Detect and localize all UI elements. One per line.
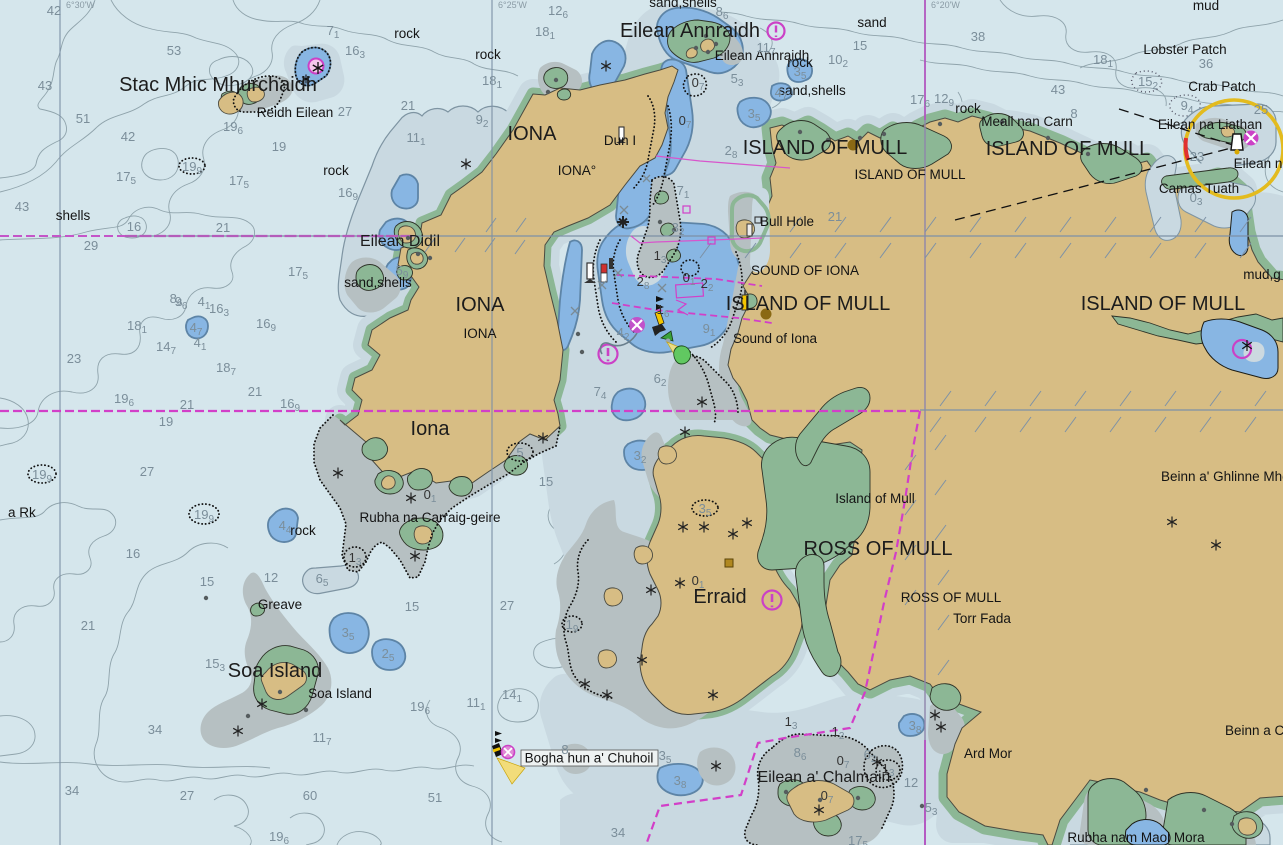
svg-text:Meall nan Carn: Meall nan Carn — [981, 114, 1073, 129]
svg-text:27: 27 — [338, 104, 352, 119]
svg-text:Dun I: Dun I — [604, 133, 636, 148]
svg-text:12: 12 — [264, 570, 278, 585]
svg-text:Lobster Patch: Lobster Patch — [1143, 42, 1226, 57]
svg-text:rock: rock — [290, 523, 316, 538]
svg-text:21: 21 — [81, 618, 95, 633]
svg-text:rock: rock — [475, 47, 501, 62]
svg-text:Beinn a C: Beinn a C — [1225, 723, 1283, 738]
svg-text:Bull Hole: Bull Hole — [760, 214, 814, 229]
svg-text:43: 43 — [1051, 82, 1065, 97]
svg-text:sand,shells: sand,shells — [778, 83, 846, 98]
svg-text:42: 42 — [47, 3, 61, 18]
svg-text:ISLAND OF MULL: ISLAND OF MULL — [743, 137, 907, 159]
svg-text:Soa Island: Soa Island — [228, 660, 323, 682]
svg-text:sand,shells: sand,shells — [649, 0, 717, 10]
svg-text:Stac Mhic Mhurchaidh: Stac Mhic Mhurchaidh — [119, 74, 317, 96]
svg-text:34: 34 — [148, 722, 162, 737]
svg-text:43: 43 — [15, 199, 29, 214]
svg-text:Iona: Iona — [411, 418, 451, 440]
svg-text:27: 27 — [180, 788, 194, 803]
svg-text:Reidh Eilean: Reidh Eilean — [257, 105, 334, 120]
svg-text:38: 38 — [971, 29, 985, 44]
svg-text:Eilean Annraidh: Eilean Annraidh — [620, 20, 760, 42]
svg-text:27: 27 — [140, 464, 154, 479]
svg-text:Island of Mull: Island of Mull — [835, 491, 915, 506]
svg-text:IONA: IONA — [456, 294, 506, 316]
svg-text:ISLAND OF MULL: ISLAND OF MULL — [854, 167, 966, 182]
svg-text:6°25'W: 6°25'W — [498, 0, 527, 10]
svg-text:ISLAND OF MULL: ISLAND OF MULL — [1081, 293, 1245, 315]
svg-text:51: 51 — [76, 111, 90, 126]
svg-text:25: 25 — [1254, 102, 1268, 117]
svg-text:Bogha hun a' Chuhoil: Bogha hun a' Chuhoil — [525, 751, 654, 766]
svg-text:42: 42 — [121, 129, 135, 144]
svg-text:sand: sand — [857, 15, 886, 30]
svg-text:Camas Tuath: Camas Tuath — [1159, 181, 1239, 196]
svg-text:19: 19 — [272, 139, 286, 154]
svg-text:Rubha nam Maol Mora: Rubha nam Maol Mora — [1067, 830, 1205, 845]
svg-text:SOUND OF IONA: SOUND OF IONA — [751, 263, 859, 278]
svg-text:15: 15 — [539, 474, 553, 489]
svg-text:Rubha na Carraig-geire: Rubha na Carraig-geire — [359, 510, 500, 525]
svg-text:shells: shells — [56, 208, 91, 223]
svg-text:Eilean na Liathan: Eilean na Liathan — [1158, 117, 1262, 132]
svg-text:6°30'W: 6°30'W — [66, 0, 95, 10]
svg-text:Eilean a' Chalmain: Eilean a' Chalmain — [758, 769, 891, 786]
svg-text:IONA: IONA — [508, 123, 558, 145]
svg-text:16: 16 — [126, 546, 140, 561]
svg-text:ISLAND OF MULL: ISLAND OF MULL — [726, 293, 890, 315]
svg-text:mud: mud — [1193, 0, 1219, 13]
svg-text:Eilean n: Eilean n — [1234, 156, 1283, 171]
svg-text:43: 43 — [38, 78, 52, 93]
svg-text:8: 8 — [1070, 106, 1077, 121]
svg-text:6°20'W: 6°20'W — [931, 0, 960, 10]
svg-text:Sound of Iona: Sound of Iona — [733, 331, 818, 346]
svg-text:rock: rock — [394, 26, 420, 41]
svg-text:29: 29 — [84, 238, 98, 253]
svg-text:16: 16 — [127, 219, 141, 234]
svg-text:Torr Fada: Torr Fada — [953, 611, 1011, 626]
svg-text:60: 60 — [303, 788, 317, 803]
svg-text:Crab Patch: Crab Patch — [1188, 79, 1256, 94]
svg-text:12: 12 — [904, 775, 918, 790]
svg-text:21: 21 — [401, 98, 415, 113]
svg-text:23: 23 — [67, 351, 81, 366]
svg-text:ROSS OF MULL: ROSS OF MULL — [804, 538, 953, 560]
svg-text:21: 21 — [248, 384, 262, 399]
svg-text:21: 21 — [216, 220, 230, 235]
svg-text:36: 36 — [1199, 56, 1213, 71]
svg-text:ISLAND OF MULL: ISLAND OF MULL — [986, 138, 1150, 160]
svg-text:21: 21 — [828, 209, 842, 224]
svg-text:Ard Mor: Ard Mor — [964, 746, 1013, 761]
svg-text:5: 5 — [516, 445, 523, 460]
svg-text:IONA°: IONA° — [558, 163, 596, 178]
svg-text:rock: rock — [323, 163, 349, 178]
svg-text:rock: rock — [955, 101, 981, 116]
svg-text:15: 15 — [200, 574, 214, 589]
svg-text:34: 34 — [611, 825, 625, 840]
svg-text:15: 15 — [853, 38, 867, 53]
svg-text:Soa Island: Soa Island — [308, 686, 372, 701]
svg-text:mud,g: mud,g — [1243, 267, 1281, 282]
svg-text:27: 27 — [500, 598, 514, 613]
svg-text:ROSS OF MULL: ROSS OF MULL — [901, 590, 1002, 605]
svg-text:53: 53 — [167, 43, 181, 58]
svg-text:8: 8 — [561, 742, 568, 757]
svg-text:51: 51 — [428, 790, 442, 805]
svg-text:19: 19 — [159, 414, 173, 429]
svg-text:Eilean Didil: Eilean Didil — [360, 233, 440, 250]
svg-text:Greave: Greave — [258, 597, 302, 612]
svg-text:a Rk: a Rk — [8, 505, 36, 520]
svg-text:Beinn a' Ghlinne Mhò: Beinn a' Ghlinne Mhò — [1161, 469, 1283, 484]
svg-text:34: 34 — [65, 783, 79, 798]
svg-text:15: 15 — [405, 599, 419, 614]
svg-text:23: 23 — [1190, 149, 1204, 164]
svg-text:21: 21 — [180, 397, 194, 412]
svg-text:IONA: IONA — [463, 326, 496, 341]
